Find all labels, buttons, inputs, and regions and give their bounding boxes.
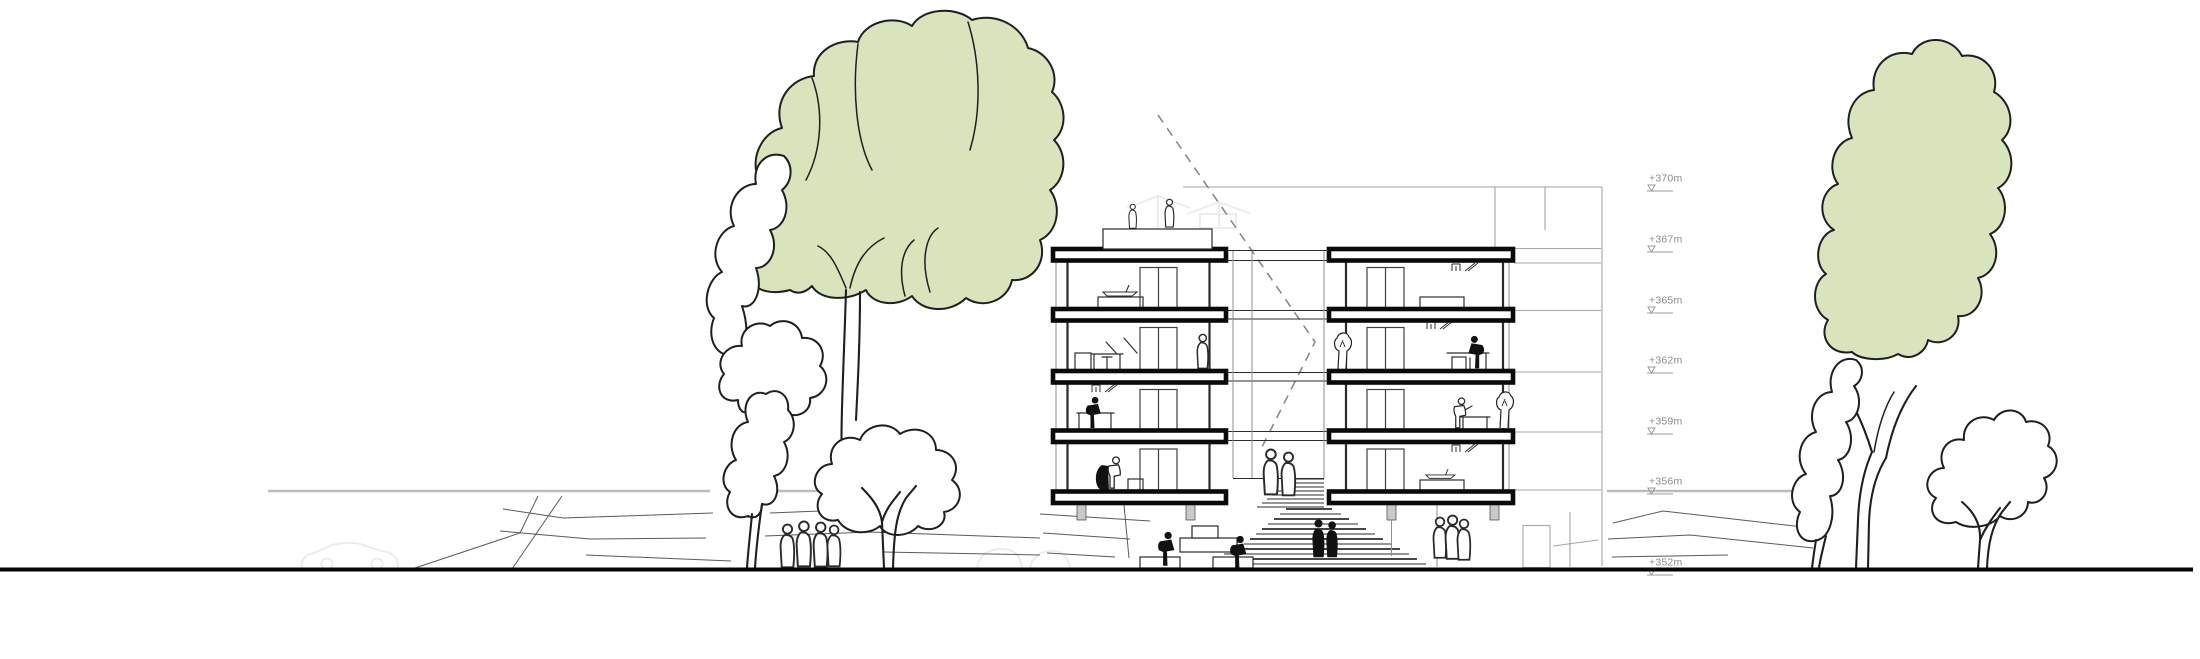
level-marker-icon (1647, 246, 1673, 252)
section-drawing: +370m +367m +365m +362m +359m +356m +352… (0, 0, 2200, 659)
tree-canopy-green (1815, 40, 2011, 359)
elevation-label: +362m (1649, 355, 1682, 367)
elevation-label: +356m (1649, 476, 1682, 488)
roof-parapet (1103, 229, 1212, 249)
tree-canopy-white (723, 391, 793, 517)
walkway-gap (1227, 251, 1328, 479)
sideboard (1098, 285, 1143, 308)
section-drawing-canvas: +370m +367m +365m +362m +359m +356m +352… (0, 0, 2200, 659)
person-standing (1326, 521, 1337, 557)
left-building (1053, 199, 1226, 503)
desk-scene (1077, 413, 1114, 430)
seat-block (1213, 557, 1253, 568)
level-marker-icon (1647, 307, 1673, 313)
person-standing (1282, 453, 1296, 496)
person-standing (1197, 334, 1208, 368)
seat-block (1192, 526, 1218, 538)
right-building (1329, 249, 1513, 503)
sideboard (1420, 469, 1464, 491)
elevation-label: +370m (1649, 173, 1682, 185)
elevation-359: +359m (1647, 416, 1682, 435)
person-sitting (1468, 336, 1484, 369)
sideboard (1420, 297, 1464, 308)
background-building-door (1523, 526, 1550, 568)
person-standing (1165, 199, 1174, 227)
level-marker-icon (1647, 367, 1673, 373)
person-sitting (1454, 398, 1466, 428)
level-marker-icon (1647, 428, 1673, 434)
pier (1186, 503, 1195, 520)
seat-block (1140, 557, 1180, 568)
person-sitting (1108, 457, 1120, 488)
ghost-cars-right (977, 549, 1070, 568)
level-marker-icon (1647, 185, 1673, 191)
elevation-scale: +370m +367m +365m +362m +359m +356m +352… (1647, 173, 1682, 576)
elevation-365: +365m (1647, 295, 1682, 314)
elevation-label: +367m (1649, 234, 1682, 246)
pier (1077, 503, 1086, 520)
person-standing (1264, 450, 1278, 495)
pier (1387, 503, 1396, 520)
pier (1490, 503, 1499, 520)
terrain-right (1608, 511, 1813, 557)
ghost-roof-parasols (1127, 196, 1251, 229)
elevation-362: +362m (1647, 355, 1682, 374)
plant (1335, 333, 1352, 369)
elevation-label: +359m (1649, 416, 1682, 428)
ghost-car (302, 543, 398, 570)
terrain-left (415, 496, 731, 569)
elevation-label: +352m (1649, 557, 1682, 569)
pedestrian-group-left (781, 522, 841, 568)
tree-canopy-white (815, 425, 960, 535)
elevation-label: +365m (1649, 295, 1682, 307)
desk-scene (1447, 353, 1489, 371)
elevation-352: +352m (1647, 557, 1682, 576)
left-tree-cluster (707, 11, 1064, 568)
seat-block (1180, 538, 1237, 552)
right-tree-cluster (1792, 40, 2057, 568)
person-standing (1312, 519, 1324, 557)
armchair (1096, 465, 1109, 491)
elevation-367: +367m (1647, 234, 1682, 253)
pedestrian-group-right (1433, 516, 1470, 560)
tree-canopy-white (1927, 410, 2056, 526)
elevation-370: +370m (1647, 173, 1682, 192)
person-sitting (1086, 397, 1101, 428)
desk-scene (1075, 338, 1137, 371)
setback-dashed-line (1158, 115, 1315, 447)
plant (1497, 392, 1514, 428)
person-standing (1129, 204, 1137, 228)
ground-line (0, 568, 2193, 572)
tree-canopy-white (1792, 359, 1862, 541)
